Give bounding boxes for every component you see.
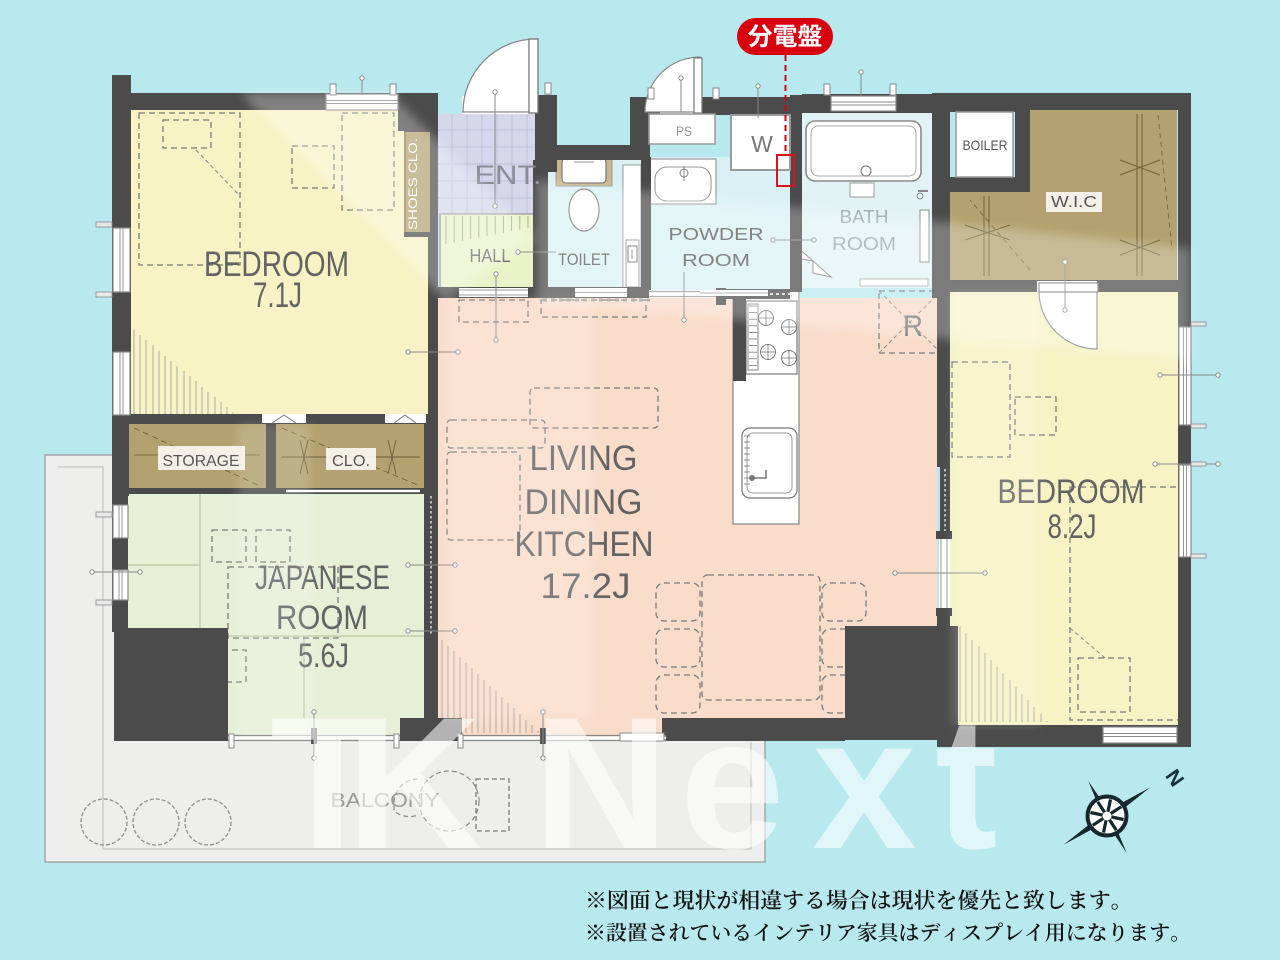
svg-text:8.2J: 8.2J [1048, 508, 1097, 546]
svg-text:STORAGE: STORAGE [163, 453, 240, 470]
svg-text:7.1J: 7.1J [253, 276, 302, 315]
svg-text:BOILER: BOILER [963, 137, 1008, 153]
svg-text:CLO.: CLO. [332, 453, 370, 470]
svg-text:e: e [680, 678, 785, 888]
svg-text:K: K [346, 678, 482, 888]
svg-text:N: N [533, 678, 669, 888]
svg-text:W.I.C: W.I.C [1051, 194, 1097, 211]
svg-text:ENT.: ENT. [475, 160, 542, 190]
svg-text:PS: PS [676, 124, 692, 139]
svg-text:x: x [812, 678, 917, 888]
svg-text:W: W [751, 131, 773, 157]
svg-text:t: t [935, 678, 998, 888]
